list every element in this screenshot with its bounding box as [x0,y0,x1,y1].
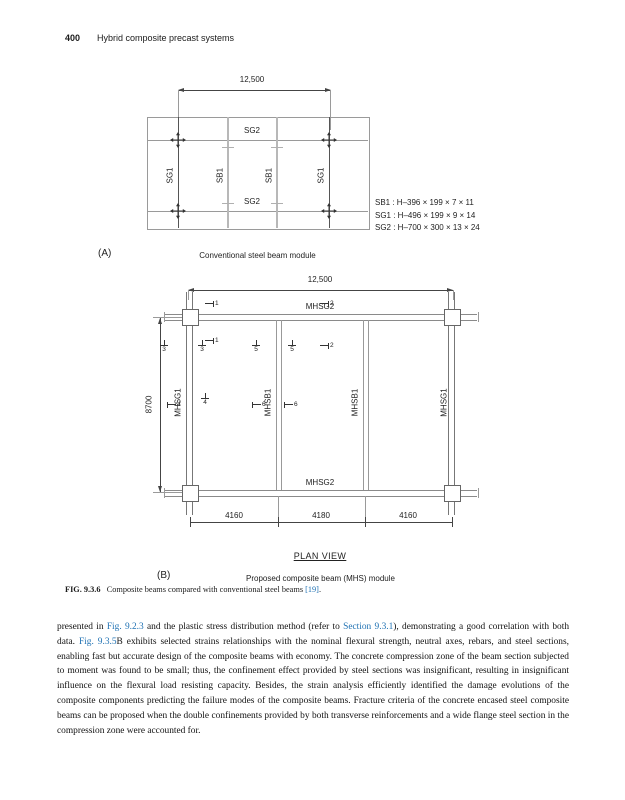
member-mhsg1-left [186,325,193,485]
dim-label-b-top: 12,500 [290,275,350,284]
column-cross-icon [170,203,186,219]
section-number: 6 [262,401,266,408]
column-stub [448,292,455,309]
beam-label-sg2-top: SG2 [222,126,282,135]
dim-label-span-2: 4180 [291,511,351,520]
member-mhsb1-1 [276,320,282,490]
figure-caption-label: FIG. 9.3.6 [65,585,101,594]
beam-end-tick [478,488,479,498]
member-mhsg1-right [448,325,455,485]
member-mhsb1-2 [363,320,369,490]
beam-end-cap [222,147,234,148]
section-marker-5-left: 5 [250,340,262,353]
dim-label-span-3: 4160 [378,511,438,520]
dim-arrow-icon [158,486,162,492]
panel-label-b: (B) [157,570,170,581]
dim-label-b-left: 8700 [145,388,154,422]
header-page-number: 400 [65,33,80,43]
column-symbol [182,485,199,502]
dimension-line [190,522,452,523]
figure-caption-period: . [319,585,321,594]
member-label-sb1-2: SB1 [265,159,274,193]
dimension-line [188,290,453,291]
legend-line-sb1: SB1 : H–396 × 199 × 7 × 11 [375,197,480,210]
dim-tick [278,517,279,527]
section-number: 3 [158,346,170,353]
member-label-sg1-left: SG1 [166,159,175,193]
column-stub [186,292,193,309]
column-cross-icon [170,132,186,148]
section-number: 6 [294,401,298,408]
section-number: 1 [215,337,219,344]
dimension-line [178,90,331,91]
section-marker-6-right: 6 [284,396,298,404]
dim-tick [365,517,366,527]
body-text: B exhibits selected strains relationship… [57,637,569,736]
body-text: and the plastic stress distribution meth… [144,622,343,632]
ref-link[interactable]: Section 9.3.1 [343,622,393,632]
section-number: 2 [330,342,334,349]
body-text: presented in [57,622,107,632]
extension-line [153,492,183,493]
section-legend: SB1 : H–396 × 199 × 7 × 11 SG1 : H–496 ×… [375,197,480,235]
section-number: 1 [215,300,219,307]
section-number: 4 [199,399,211,406]
column-cross-icon [321,203,337,219]
member-label-sg1-right: SG1 [317,159,326,193]
section-marker-2-top: 2 [320,295,334,303]
section-marker-4-left: 4 [167,396,181,404]
panel-caption-a: Conventional steel beam module [170,251,345,260]
section-marker-3-left: 3 [158,340,170,353]
section-marker-1-top: 1 [205,295,219,303]
panel-caption-b: Proposed composite beam (MHS) module [228,574,413,583]
beam-end-tick [164,488,165,498]
header-running-title: Hybrid composite precast systems [97,33,234,43]
section-marker-5-right: 5 [286,340,298,353]
beam-label-sg2-bottom: SG2 [222,197,282,206]
dim-tick [452,517,453,527]
section-number: 5 [250,346,262,353]
dim-label-span-1: 4160 [204,511,264,520]
ref-link[interactable]: Fig. 9.3.5 [79,637,117,647]
body-paragraph: presented in Fig. 9.2.3 and the plastic … [57,620,569,738]
section-marker-1-bottom: 1 [205,332,219,340]
beam-end-tick [478,312,479,322]
beam-mhsg2-top [165,314,477,321]
section-number: 4 [177,401,181,408]
section-marker-3-right: 3 [196,340,208,353]
figure-caption: FIG. 9.3.6 Composite beams compared with… [65,585,570,594]
legend-line-sg1: SG1 : H–496 × 199 × 9 × 14 [375,210,480,223]
dim-arrow-icon [158,318,162,324]
section-number: 5 [286,346,298,353]
member-label-sb1-1: SB1 [216,159,225,193]
ref-link[interactable]: [19] [305,585,319,594]
plan-view-label: PLAN VIEW [270,551,370,561]
section-marker-4-right: 4 [199,393,211,406]
beam-end-cap [271,147,283,148]
column-symbol [444,485,461,502]
section-number: 3 [196,346,208,353]
section-number: 2 [330,300,334,307]
dim-label-a-top: 12,500 [222,75,282,84]
column-cross-icon [321,132,337,148]
panel-label-a: (A) [98,248,111,259]
column-stub [448,501,455,515]
section-marker-2-bottom: 2 [320,337,334,345]
dim-tick [190,517,191,527]
legend-line-sg2: SG2 : H–700 × 300 × 13 × 24 [375,222,480,235]
book-page: 400 Hybrid composite precast systems 12,… [0,0,625,800]
column-stub [186,501,193,515]
column-symbol [182,309,199,326]
beam-mhsg2-bottom [165,490,477,497]
member-label-mhsg1-right: MHSG1 [440,386,449,420]
ref-link[interactable]: Fig. 9.2.3 [107,622,144,632]
section-marker-6-left: 6 [252,396,266,404]
figure-caption-text: Composite beams compared with convention… [107,585,305,594]
column-symbol [444,309,461,326]
member-label-mhsb1-2: MHSB1 [351,386,360,420]
beam-label-mhsg2-bottom: MHSG2 [285,478,355,487]
